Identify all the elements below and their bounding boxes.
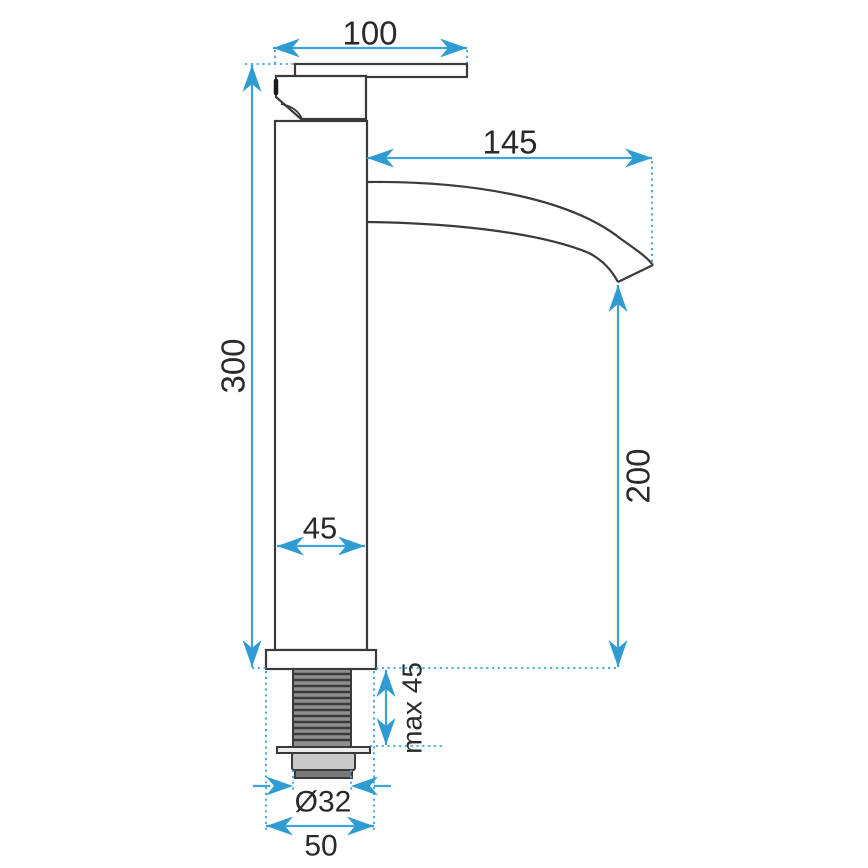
dim-handle-width: 100 xyxy=(273,15,467,58)
dim-label-thread-diameter: Ø32 xyxy=(295,786,352,819)
dim-base-diameter: 50 xyxy=(266,817,374,863)
dim-label-max-mounting-thickness: max 45 xyxy=(397,662,428,754)
dim-label-outlet-height: 200 xyxy=(620,448,657,503)
faucet-body xyxy=(275,121,367,650)
dim-label-base-diameter: 50 xyxy=(304,830,337,863)
dim-spout-reach: 145 xyxy=(367,124,652,168)
dim-label-body-width: 45 xyxy=(303,511,337,546)
faucet-threaded-shank xyxy=(293,669,351,747)
faucet-spout-tip-edge xyxy=(618,265,653,282)
dim-outlet-height: 200 xyxy=(609,285,657,667)
faucet-dimension-drawing: 100 145 300 45 200 max 45 xyxy=(0,0,868,868)
faucet-spout xyxy=(367,182,653,282)
faucet-cartridge-block xyxy=(276,76,366,119)
dim-label-spout-reach: 145 xyxy=(482,124,537,161)
faucet-outline xyxy=(266,64,653,778)
dim-thread-diameter: Ø32 xyxy=(253,777,391,819)
dim-label-handle-width: 100 xyxy=(342,15,397,52)
dim-body-height: 300 xyxy=(215,65,262,667)
technical-drawing-canvas: 100 145 300 45 200 max 45 xyxy=(0,0,868,868)
faucet-base-plate xyxy=(266,650,376,669)
faucet-nut-lower-ring xyxy=(295,770,352,778)
faucet-spout-lower-curve xyxy=(367,222,618,282)
dim-max-mounting-thickness: max 45 xyxy=(377,662,428,754)
faucet-mounting-nut xyxy=(292,753,355,770)
dim-label-body-height: 300 xyxy=(215,338,252,393)
